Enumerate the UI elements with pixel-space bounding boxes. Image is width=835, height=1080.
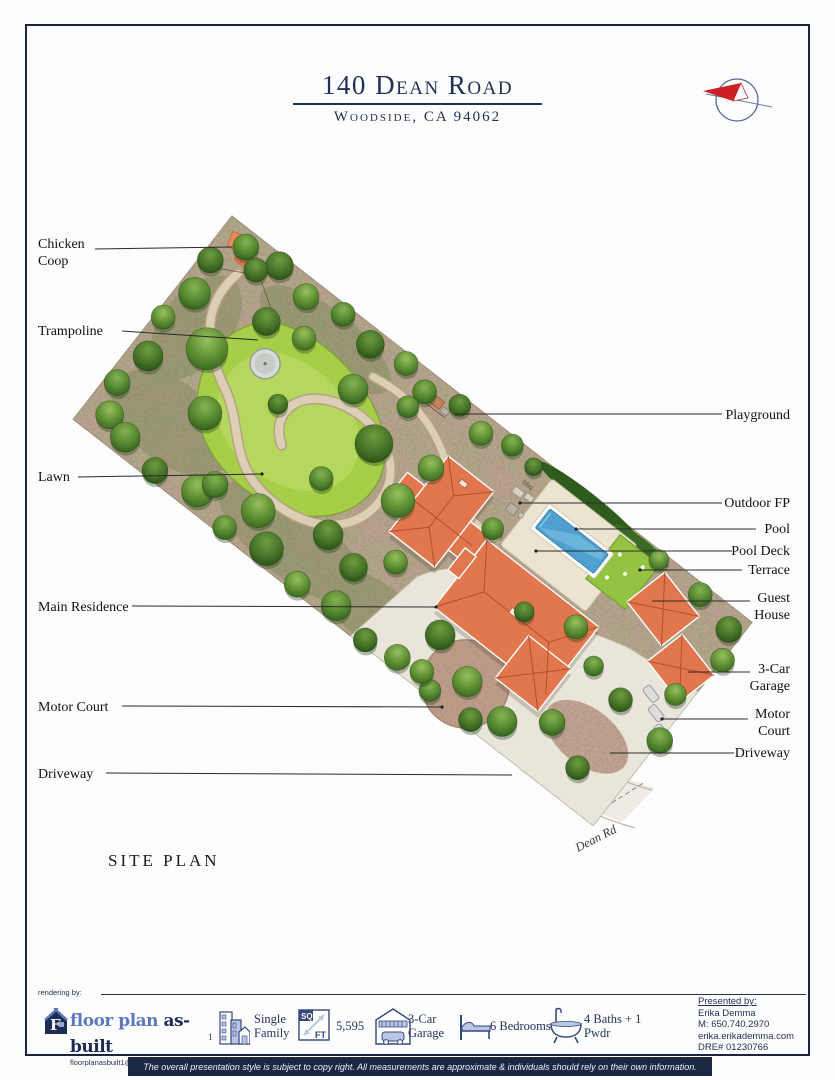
label-lawn: Lawn: [38, 469, 70, 486]
presented-by-block: Presented by: Erika Demma M: 650.740.297…: [698, 996, 810, 1054]
footer-rule: [101, 994, 806, 995]
floorplan-logo-house-icon: F: [42, 1008, 70, 1036]
bath-icon: [548, 1006, 584, 1046]
agent-dre: DRE# 01230766: [698, 1042, 810, 1054]
garage-icon: [374, 1006, 412, 1046]
agent-phone: M: 650.740.2970: [698, 1019, 810, 1031]
label-driveway-right: Driveway: [700, 745, 790, 762]
presented-by-heading: Presented by:: [698, 996, 810, 1008]
baths-label: 4 Baths + 1 Pwdr: [584, 1012, 654, 1040]
garage-label: 3-Car Garage: [408, 1012, 460, 1040]
label-pool: Pool: [700, 521, 790, 538]
street-name-label: Dean Rd: [572, 822, 619, 855]
label-playground: Playground: [700, 407, 790, 424]
sqft-icon-sq-text: SQ: [301, 1012, 313, 1021]
agent-website: erika.erikademma.com: [698, 1031, 810, 1043]
label-driveway-left: Driveway: [38, 766, 93, 783]
sqft-icon: SQ FT: [298, 1009, 330, 1041]
plan-caption: SITE PLAN: [108, 851, 220, 871]
label-outdoor-fp: Outdoor FP: [700, 495, 790, 512]
agent-name: Erika Demma: [698, 1008, 810, 1020]
sqft-value: 5,595: [336, 1019, 364, 1033]
label-motor-court-left: Motor Court: [38, 699, 108, 716]
label-trampoline: Trampoline: [38, 323, 103, 340]
site-plan-illustration: bbq: [0, 0, 835, 920]
single-family-icon: [214, 1006, 250, 1048]
property-lot: bbq: [63, 210, 767, 843]
leader-motor-court-left: [122, 706, 442, 707]
sqft-icon-ft-text: FT: [315, 1030, 326, 1040]
label-guest-house: Guest House: [738, 590, 790, 624]
disclaimer-bar: The overall presentation style is subjec…: [128, 1057, 712, 1076]
rendering-by-label: rendering by:: [38, 988, 82, 997]
label-chicken-coop: Chicken Coop: [38, 236, 104, 270]
leader-driveway-left: [106, 773, 512, 775]
bed-icon: [458, 1013, 492, 1041]
label-terrace: Terrace: [700, 562, 790, 579]
label-garage: 3-Car Garage: [738, 661, 790, 695]
label-main-residence: Main Residence: [38, 599, 129, 616]
label-pool-deck: Pool Deck: [700, 543, 790, 560]
label-motor-court-right: Motor Court: [740, 706, 790, 740]
bedrooms-label: 6 Bedrooms: [490, 1019, 551, 1033]
site-plan-page: 140 Dean Road Woodside, CA 94062: [0, 0, 835, 1080]
single-family-count: 1: [208, 1032, 213, 1042]
